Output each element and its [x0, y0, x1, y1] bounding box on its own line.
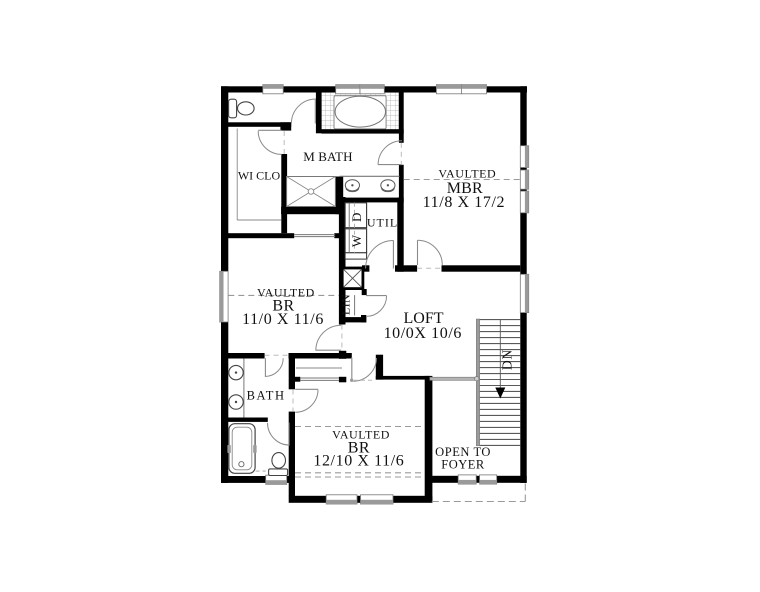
svg-text:D: D: [349, 212, 364, 222]
svg-text:10/0X 10/6: 10/0X 10/6: [384, 325, 462, 342]
svg-text:WI CLO: WI CLO: [238, 169, 281, 183]
svg-text:11/8 X 17/2: 11/8 X 17/2: [423, 194, 505, 211]
svg-text:VAULTED: VAULTED: [438, 166, 496, 180]
svg-text:11/0 X 11/6: 11/0 X 11/6: [242, 311, 324, 328]
svg-text:LIN: LIN: [338, 294, 352, 315]
svg-text:BATH: BATH: [247, 389, 286, 403]
svg-text:M BATH: M BATH: [303, 149, 352, 164]
svg-text:FOYER: FOYER: [441, 458, 485, 472]
svg-text:W: W: [349, 234, 364, 247]
svg-text:UTIL: UTIL: [367, 216, 398, 230]
svg-text:DN: DN: [499, 349, 514, 370]
svg-text:12/10 X 11/6: 12/10 X 11/6: [313, 453, 404, 470]
